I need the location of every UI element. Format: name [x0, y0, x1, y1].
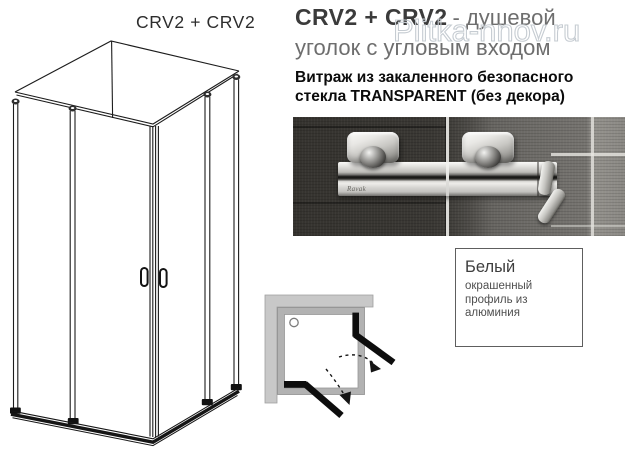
shower-enclosure-isometric-drawing [0, 0, 260, 452]
corner-entry-plan-diagram [255, 288, 405, 428]
tile-grout-horizontal [293, 126, 446, 128]
profile-feet [10, 384, 242, 424]
tile-grout-horizontal [293, 202, 446, 204]
catalog-page: CRV2 + CRV2 [0, 0, 625, 452]
tile-grout-vertical [591, 117, 594, 236]
door-handles [141, 268, 167, 287]
profile-color-box: Белый окрашенный профиль из алюминия [455, 248, 583, 347]
wall-bracket-left [347, 132, 399, 163]
tile-grout-horizontal [551, 153, 625, 156]
drawing-title: CRV2 + CRV2 [136, 12, 255, 33]
profile-color-description: окрашенный профиль из алюминия [465, 280, 571, 321]
glass-note-line1: Витраж из закаленного безопасного [295, 69, 573, 86]
profile-color-title: Белый [465, 258, 574, 277]
hinge-caps [12, 74, 241, 112]
glass-note-line2: стекла TRANSPARENT (без декора) [295, 88, 565, 105]
bar-glass-joint [446, 162, 449, 196]
wall-bracket-right [462, 132, 514, 163]
brand-mark: Ravak [347, 185, 366, 193]
handle-photo: Ravak [293, 117, 625, 236]
watermark: Plitka-nnov.ru [393, 13, 580, 49]
glass-note: Витраж из закаленного безопасного стекла… [295, 68, 573, 106]
drain-circle [290, 318, 298, 326]
tile-grout-horizontal [551, 225, 625, 227]
